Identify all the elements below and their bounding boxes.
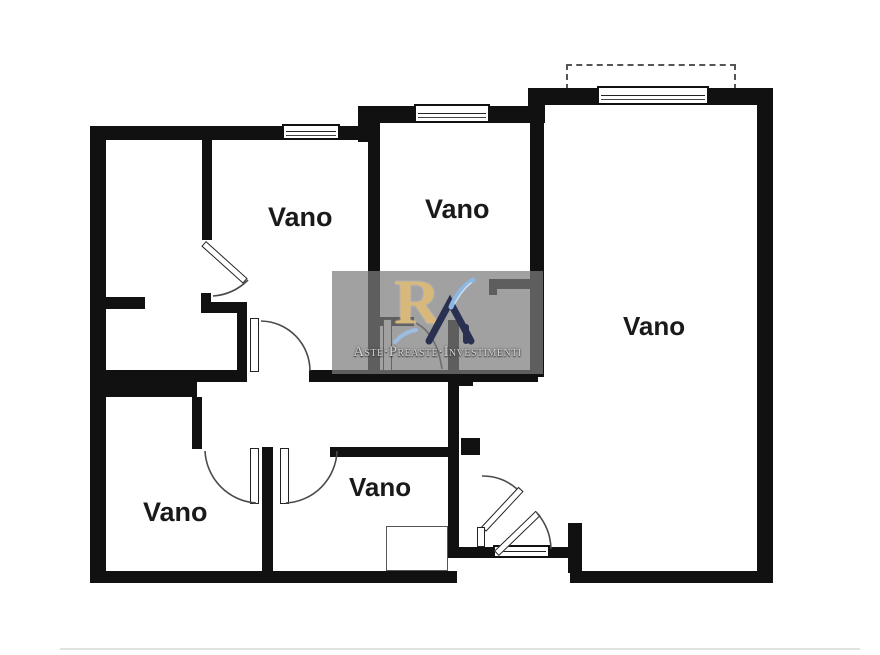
logo-blue-swoosh-small	[395, 330, 416, 342]
floor-plan: Vano Vano Vano Vano Vano R Aste·Preaste·…	[0, 0, 880, 655]
watermark-logo-strokes	[0, 0, 880, 655]
